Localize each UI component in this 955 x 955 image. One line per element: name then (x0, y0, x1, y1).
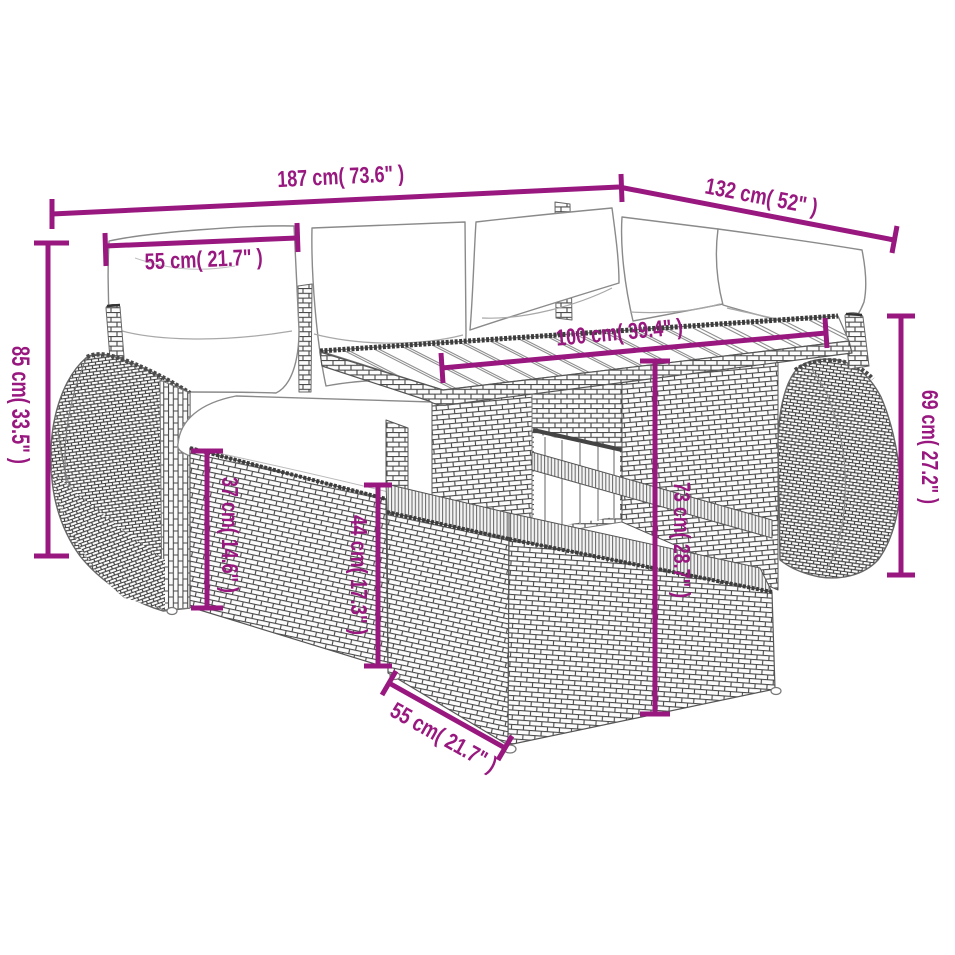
svg-text:73 cm( 28.7" ): 73 cm( 28.7" ) (669, 482, 695, 598)
svg-text:55 cm( 21.7" ): 55 cm( 21.7" ) (144, 244, 263, 275)
svg-text:69 cm( 27.2" ): 69 cm( 27.2" ) (917, 390, 943, 504)
svg-text:44 cm( 17.3" ): 44 cm( 17.3" ) (346, 515, 372, 635)
svg-text:85 cm( 33.5" ): 85 cm( 33.5" ) (6, 346, 34, 464)
svg-text:37 cm( 14.6" ): 37 cm( 14.6" ) (217, 477, 243, 593)
